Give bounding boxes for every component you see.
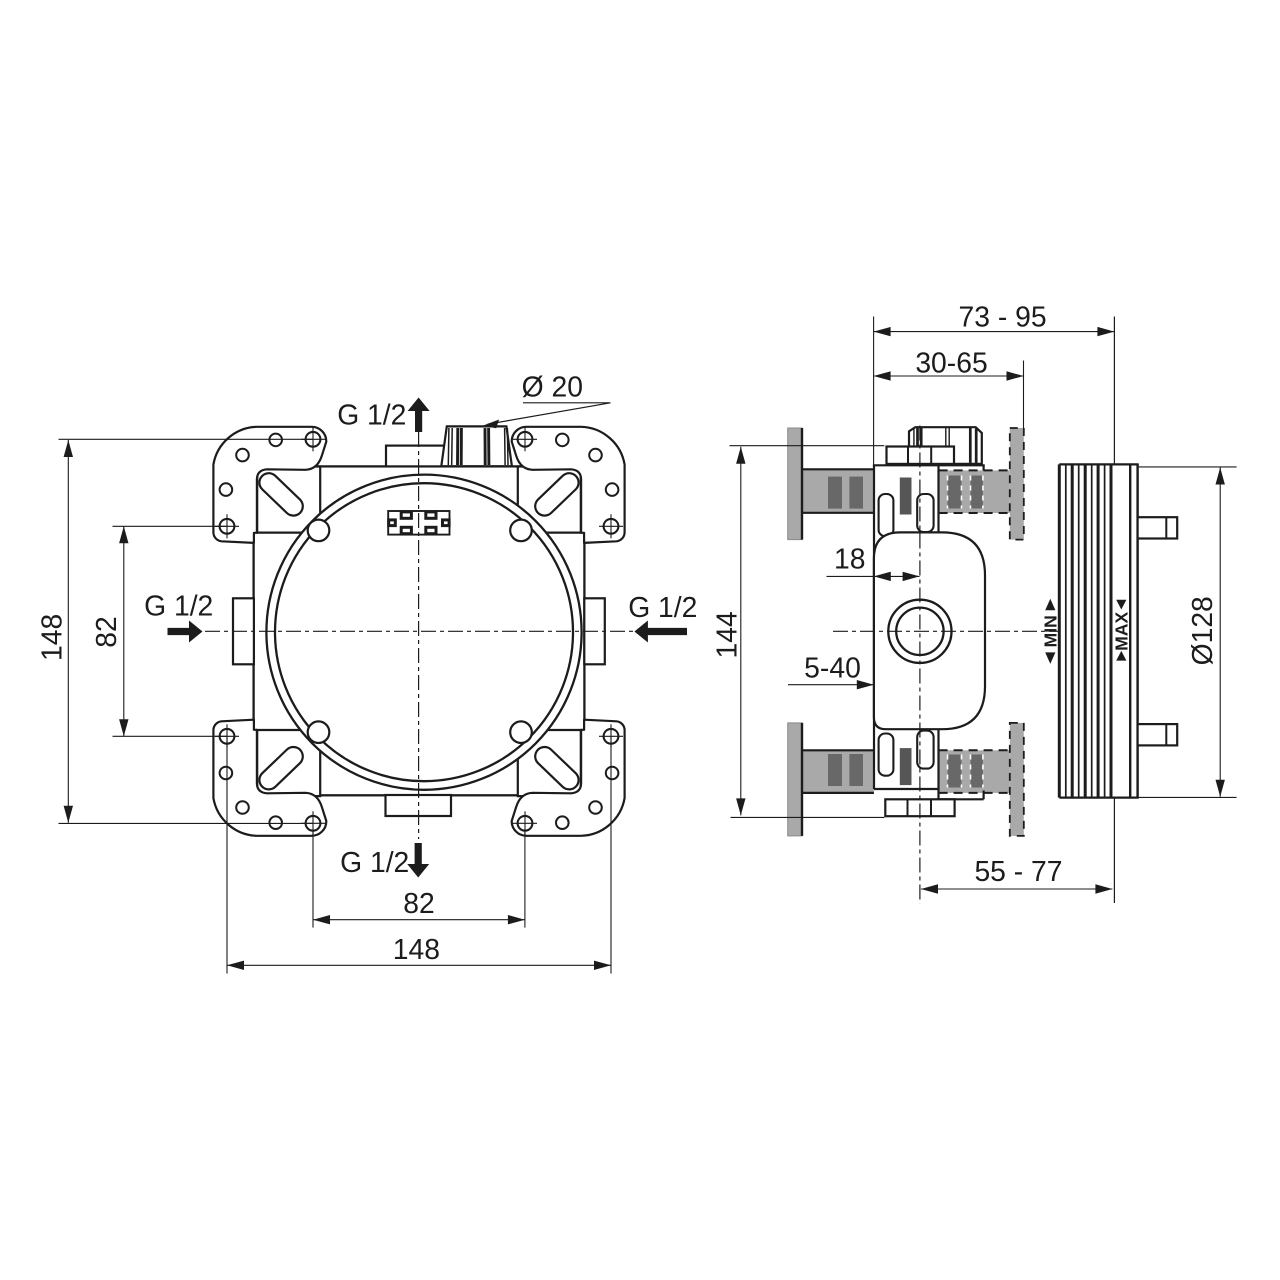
svg-text:MAX: MAX — [1111, 612, 1131, 651]
svg-text:73 - 95: 73 - 95 — [959, 300, 1047, 332]
svg-text:G 1/2: G 1/2 — [144, 590, 213, 622]
svg-text:G 1/2: G 1/2 — [628, 591, 697, 623]
svg-text:148: 148 — [36, 614, 68, 661]
svg-text:82: 82 — [90, 616, 122, 647]
svg-text:55 - 77: 55 - 77 — [974, 855, 1062, 887]
svg-text:Ø128: Ø128 — [1186, 596, 1218, 665]
svg-text:G 1/2: G 1/2 — [340, 846, 409, 878]
svg-text:144: 144 — [710, 611, 742, 658]
svg-text:148: 148 — [393, 933, 440, 965]
svg-text:G 1/2: G 1/2 — [337, 398, 406, 430]
svg-text:82: 82 — [403, 887, 434, 919]
svg-text:5-40: 5-40 — [804, 651, 861, 683]
svg-text:30-65: 30-65 — [915, 346, 987, 378]
svg-text:Ø 20: Ø 20 — [522, 370, 583, 402]
svg-text:18: 18 — [834, 543, 865, 575]
